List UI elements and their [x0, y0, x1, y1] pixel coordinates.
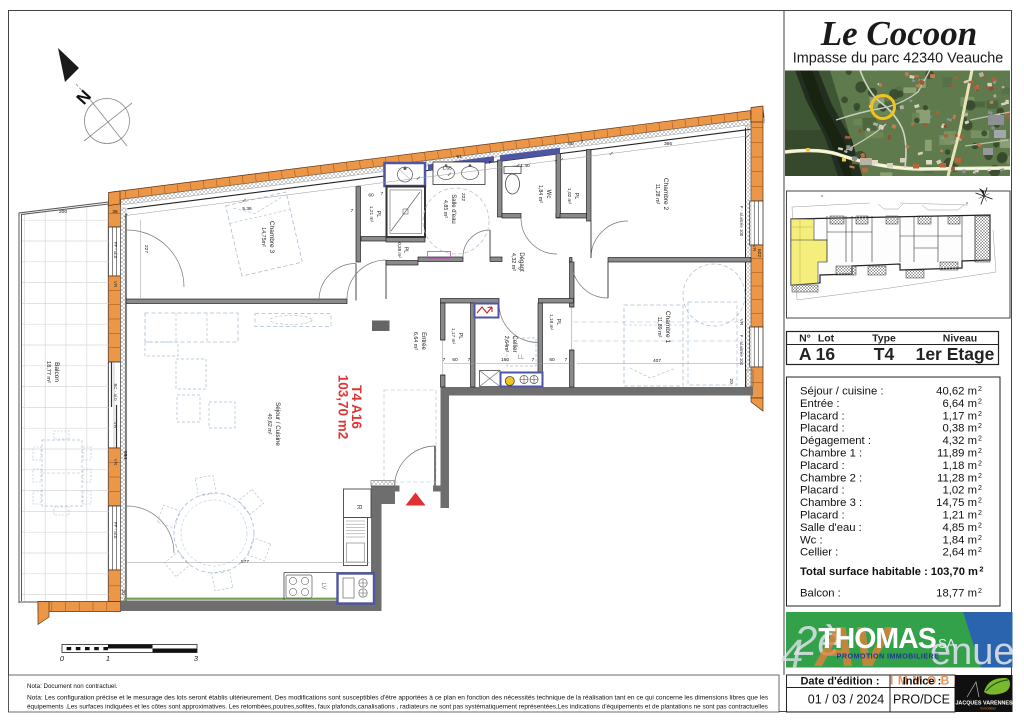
svg-text:2: 2 [978, 411, 982, 418]
svg-text:BC - al.0: BC - al.0 [113, 383, 118, 401]
svg-text:VR: VR [113, 422, 118, 429]
svg-text:60: 60 [568, 141, 574, 147]
svg-text:Total surface habitable :: Total surface habitable : [800, 566, 928, 578]
svg-text:1,02 m²: 1,02 m² [566, 188, 572, 205]
svg-text:366: 366 [664, 141, 672, 147]
svg-text:Salle d'eau: Salle d'eau [450, 194, 456, 224]
svg-text:40,62 m: 40,62 m [936, 386, 977, 398]
svg-text:14,75m²: 14,75m² [260, 227, 266, 247]
svg-text:LV: LV [320, 583, 326, 590]
svg-text:PROMOTION IMMOBILIERE: PROMOTION IMMOBILIERE [837, 652, 940, 661]
svg-text:7: 7 [565, 357, 568, 363]
svg-text:160: 160 [501, 357, 509, 363]
svg-text:Balcon :: Balcon : [800, 588, 841, 600]
svg-text:Placard :: Placard : [800, 410, 845, 422]
svg-text:2: 2 [978, 522, 982, 529]
svg-text:7: 7 [555, 159, 558, 165]
svg-text:60: 60 [549, 357, 555, 363]
svg-text:4,32 m: 4,32 m [942, 435, 977, 447]
svg-text:Chambre 3: Chambre 3 [268, 221, 275, 254]
svg-text:Placard :: Placard : [800, 460, 845, 472]
svg-text:6,64 m²: 6,64 m² [412, 332, 418, 350]
svg-text:1: 1 [106, 654, 110, 663]
svg-text:1.65: 1.65 [442, 166, 452, 172]
svg-text:1,02 m: 1,02 m [942, 485, 977, 497]
svg-text:1,18 m²: 1,18 m² [548, 314, 554, 331]
svg-text:18,77 m: 18,77 m [936, 588, 977, 600]
svg-text:11,89 m: 11,89 m [937, 448, 977, 460]
svg-text:36: 36 [112, 209, 118, 215]
svg-text:2: 2 [978, 498, 982, 505]
svg-text:Placard :: Placard : [800, 485, 845, 497]
svg-text:7: 7 [468, 357, 471, 363]
svg-text:18,77 m²: 18,77 m² [45, 361, 51, 383]
svg-text:60: 60 [452, 357, 458, 363]
svg-text:Indice :: Indice : [903, 676, 942, 688]
svg-text:222: 222 [460, 193, 466, 201]
svg-text:7: 7 [581, 140, 584, 146]
svg-text:1.40: 1.40 [520, 163, 530, 169]
svg-text:103,70 m: 103,70 m [931, 566, 978, 578]
svg-text:2: 2 [978, 448, 982, 455]
svg-text:91: 91 [456, 154, 462, 160]
svg-text:Cellier :: Cellier : [800, 547, 838, 559]
svg-text:PL: PL [573, 193, 579, 200]
svg-text:PL: PL [457, 333, 463, 340]
svg-text:4,85 m: 4,85 m [942, 522, 977, 534]
svg-text:THOMAS: THOMAS [818, 623, 936, 655]
svg-text:Dégagt: Dégagt [518, 252, 524, 272]
svg-text:F - al.vitrée 100: F - al.vitrée 100 [739, 335, 744, 366]
svg-text:694: 694 [122, 451, 128, 459]
svg-text:VR: VR [113, 281, 118, 288]
svg-text:.SA: .SA [935, 636, 956, 651]
svg-text:7: 7 [443, 357, 446, 363]
svg-text:14,75 m: 14,75 m [936, 497, 977, 509]
svg-text:2: 2 [978, 510, 982, 517]
svg-text:60: 60 [368, 193, 374, 199]
svg-text:VR: VR [113, 459, 118, 466]
svg-text:Wc :: Wc : [800, 534, 823, 546]
svg-text:Placard :: Placard : [800, 510, 845, 522]
svg-text:227: 227 [143, 245, 149, 253]
svg-text:0,38 m²: 0,38 m² [397, 242, 402, 258]
svg-text:Wc: Wc [545, 190, 551, 199]
svg-text:Cellier: Cellier [511, 335, 517, 352]
svg-text:Balcon: Balcon [53, 362, 60, 382]
svg-text:PL: PL [403, 247, 409, 253]
svg-text:2: 2 [978, 460, 982, 467]
svg-text:Chambre 3 :: Chambre 3 : [800, 497, 862, 509]
svg-text:2: 2 [978, 398, 982, 405]
svg-text:7: 7 [381, 191, 384, 197]
svg-text:7: 7 [532, 357, 535, 363]
svg-text:11,89 m²: 11,89 m² [656, 317, 662, 338]
svg-text:4,85 m²: 4,85 m² [442, 200, 448, 218]
svg-text:20: 20 [728, 378, 734, 384]
svg-text:Type: Type [872, 333, 896, 345]
svg-text:1er Etage: 1er Etage [916, 344, 995, 364]
svg-text:A 16: A 16 [799, 344, 836, 364]
svg-text:Nota: Document non contractuel: Nota: Document non contractuel. [27, 683, 118, 690]
svg-text:Salle d'eau :: Salle d'eau : [800, 522, 862, 534]
svg-text:2: 2 [978, 436, 982, 443]
svg-text:PF - al.0: PF - al.0 [113, 522, 118, 539]
svg-text:PL: PL [555, 319, 561, 326]
svg-text:7: 7 [489, 160, 492, 166]
svg-text:11,28 m²: 11,28 m² [654, 184, 660, 205]
svg-text:2: 2 [978, 386, 982, 393]
svg-text:N°: N° [799, 333, 811, 345]
svg-text:01 / 03 / 2024: 01 / 03 / 2024 [808, 693, 885, 707]
svg-text:équipements .Les surfaces indi: équipements .Les surfaces indiquées et l… [27, 704, 768, 711]
svg-text:Chambre 2: Chambre 2 [662, 178, 669, 211]
svg-text:Lot: Lot [818, 333, 835, 345]
svg-text:VR: VR [739, 319, 744, 326]
svg-text:Chambre 2 :: Chambre 2 : [800, 472, 862, 484]
svg-text:2: 2 [978, 547, 982, 554]
svg-text:5.36: 5.36 [242, 206, 252, 212]
svg-text:Nota: Les configuration précis: Nota: Les configuration précise et le me… [27, 695, 769, 702]
svg-text:T4: T4 [874, 344, 895, 364]
svg-text:2: 2 [978, 423, 982, 430]
svg-text:Impasse du parc 42340 Veau: Impasse du parc 42340 Veauche [793, 51, 1003, 67]
svg-text:Niveau: Niveau [943, 333, 977, 345]
svg-text:F - al.vitrée 100: F - al.vitrée 100 [739, 206, 744, 237]
svg-text:1,17 m²: 1,17 m² [450, 328, 456, 345]
svg-text:immobilier: immobilier [980, 707, 997, 711]
svg-text:1,17 m: 1,17 m [942, 410, 977, 422]
svg-text:2: 2 [978, 535, 982, 542]
svg-text:Séjour / Cuisine: Séjour / Cuisine [274, 402, 281, 446]
svg-text:Date d'édition :: Date d'édition : [800, 676, 879, 688]
svg-text:Le Cocoon: Le Cocoon [820, 14, 978, 53]
svg-text:1,18 m: 1,18 m [942, 460, 977, 472]
svg-text:2: 2 [978, 485, 982, 492]
svg-text:2: 2 [978, 588, 982, 595]
svg-text:0,38 m: 0,38 m [942, 423, 977, 435]
svg-text:Chambre 1: Chambre 1 [664, 311, 671, 344]
svg-text:Entrée: Entrée [420, 332, 426, 350]
svg-text:Dégagement :: Dégagement : [800, 435, 871, 447]
svg-text:R: R [355, 504, 362, 509]
svg-text:1,84 m²: 1,84 m² [537, 185, 543, 203]
svg-text:11,28 m: 11,28 m [937, 472, 977, 484]
svg-text:1,21 m²: 1,21 m² [368, 206, 374, 223]
svg-text:6,64 m: 6,64 m [942, 398, 977, 410]
svg-text:2: 2 [979, 565, 983, 574]
svg-text:407: 407 [653, 358, 661, 364]
svg-text:Placard :: Placard : [800, 423, 845, 435]
svg-text:20: 20 [120, 589, 126, 595]
svg-text:1,84 m: 1,84 m [942, 534, 977, 546]
svg-text:Chambre 1 :: Chambre 1 : [800, 448, 862, 460]
svg-text:7: 7 [351, 208, 354, 214]
svg-text:1,21 m: 1,21 m [942, 510, 977, 522]
svg-text:622: 622 [756, 249, 762, 257]
svg-text:Séjour / cuisine :: Séjour / cuisine : [800, 386, 884, 398]
svg-text:2,64 m: 2,64 m [942, 547, 977, 559]
svg-text:LL: LL [518, 355, 525, 361]
svg-text:PL: PL [375, 211, 381, 218]
svg-text:PRO/DCE: PRO/DCE [893, 693, 950, 707]
svg-text:40,62 m²: 40,62 m² [266, 414, 272, 435]
svg-text:Entrée :: Entrée : [800, 398, 840, 410]
svg-text:2,64m²: 2,64m² [503, 336, 509, 353]
svg-text:4,32 m²: 4,32 m² [510, 253, 516, 271]
svg-text:577: 577 [241, 559, 249, 565]
svg-text:103,70 m2: 103,70 m2 [336, 375, 351, 440]
svg-text:2: 2 [978, 473, 982, 480]
svg-text:200: 200 [59, 209, 67, 215]
svg-text:FF - al.0: FF - al.0 [113, 242, 118, 259]
